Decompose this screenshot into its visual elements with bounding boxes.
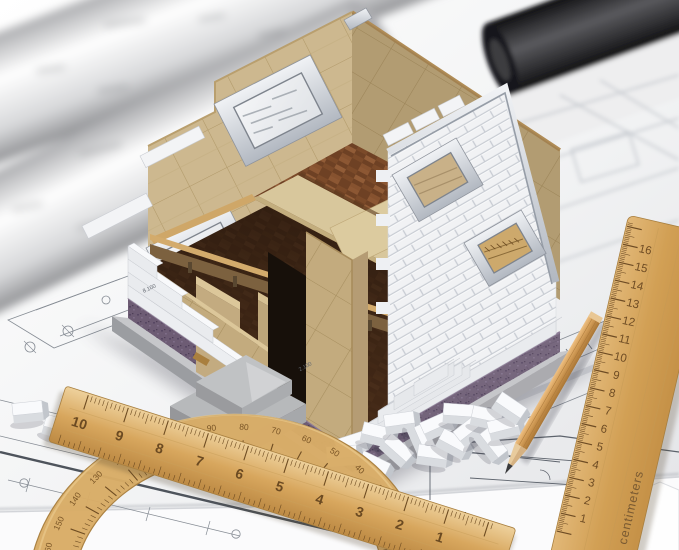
scene-canvas: 1020304050607080901001101201301401501601… (0, 0, 679, 550)
protractor-degree-label: 80 (239, 422, 249, 433)
corner-column (306, 232, 352, 452)
architecture-render-image: 1020304050607080901001101201301401501601… (0, 0, 679, 550)
